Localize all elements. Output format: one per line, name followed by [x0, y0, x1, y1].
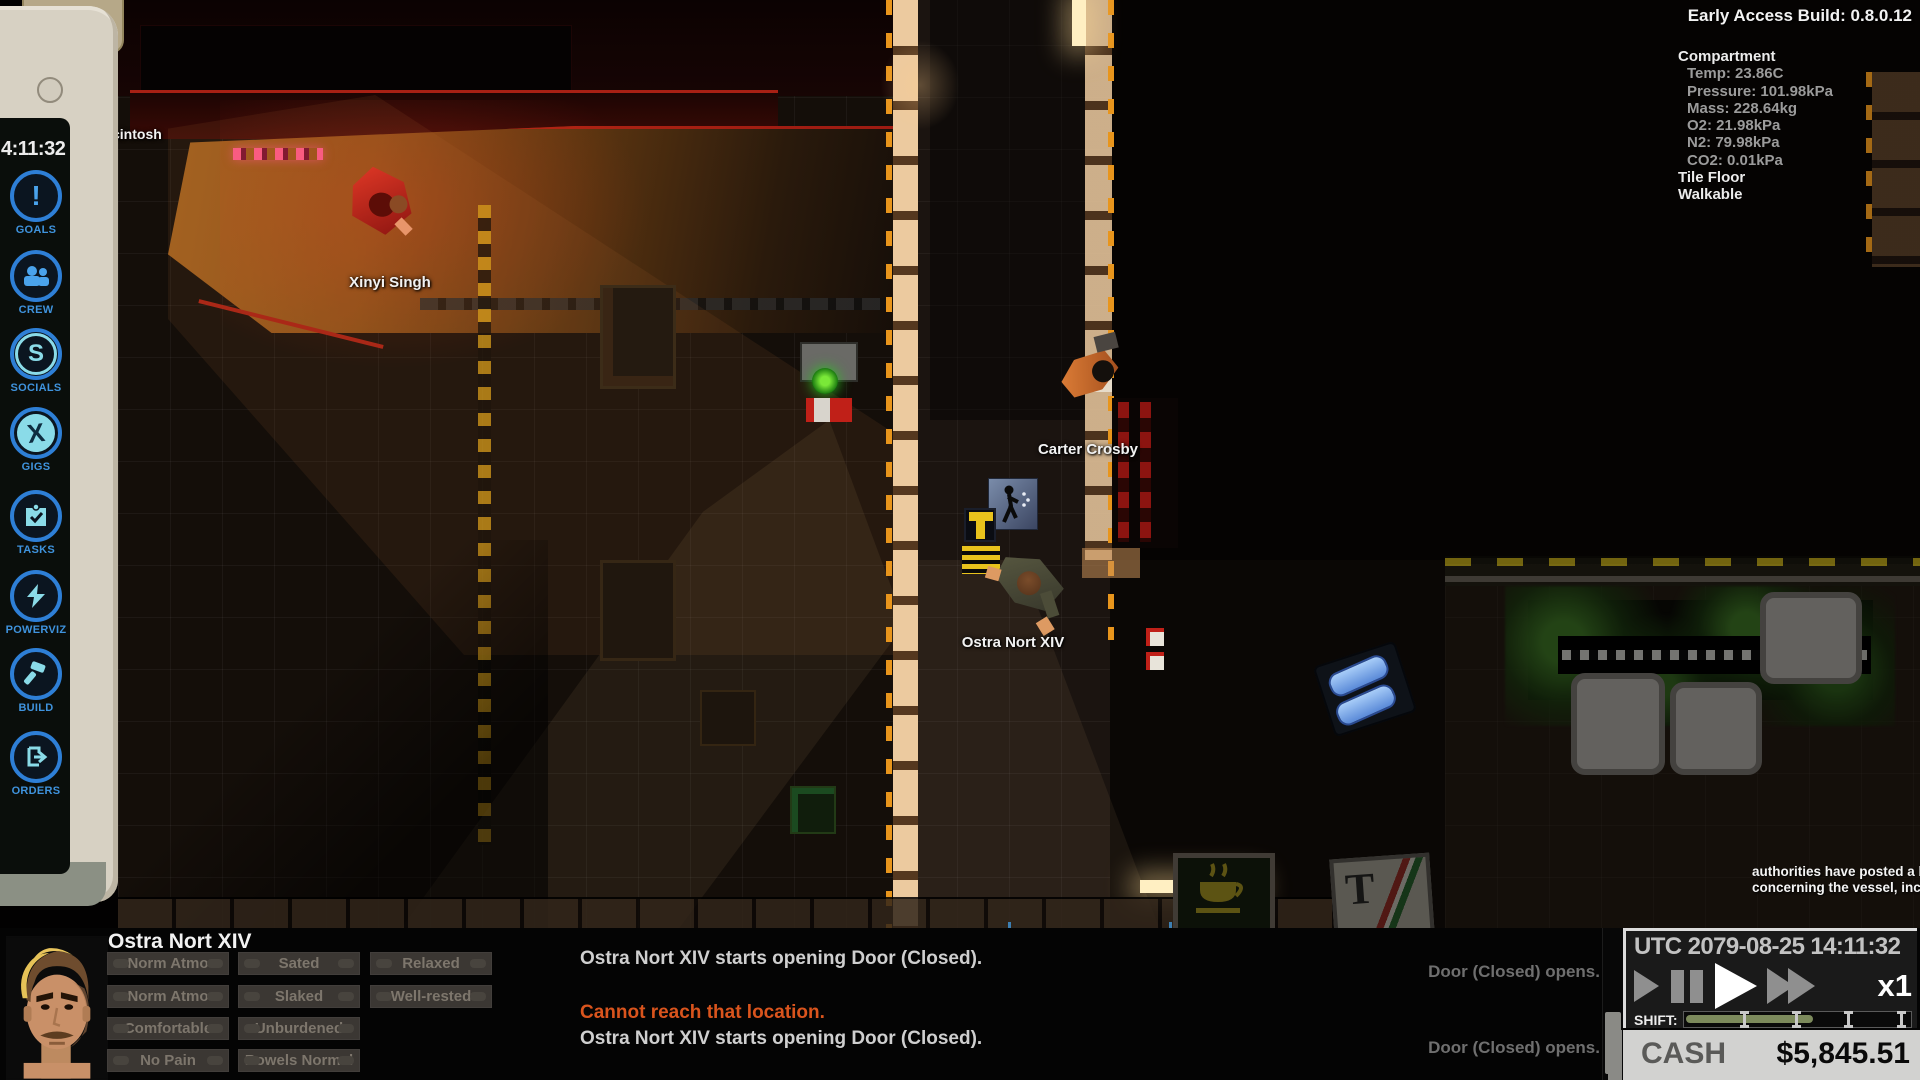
transit-t-sign[interactable]: T	[1329, 853, 1434, 930]
east-door-glow	[1082, 548, 1140, 578]
stat-n2: N2: 79.98kPa	[1678, 134, 1833, 151]
log-line-warning: Cannot reach that location.	[580, 1002, 825, 1024]
door-green-light[interactable]	[812, 368, 838, 394]
corridor-wall-west	[893, 0, 918, 930]
cash-bar: CASH $5,845.51	[1623, 1030, 1920, 1080]
fast-forward-icon[interactable]	[1767, 968, 1815, 1004]
datapad-camera-dot	[37, 77, 63, 103]
character-portrait[interactable]	[6, 936, 108, 1080]
far-right-wall	[1872, 72, 1920, 267]
door-indicator-1[interactable]	[1146, 628, 1164, 646]
goals-icon: !	[10, 170, 62, 222]
coffee-sign[interactable]	[1173, 853, 1275, 930]
playback-controls: x1	[1634, 963, 1912, 1009]
xinyi-arm	[394, 217, 412, 235]
door-frame-prop[interactable]	[600, 285, 676, 389]
sidebar-item-gigs[interactable]: X GIGS	[0, 407, 72, 473]
tile-type-label: Tile Floor	[1678, 169, 1833, 186]
lounge-seat-1[interactable]	[1571, 673, 1665, 775]
pink-light-strip	[233, 148, 323, 160]
lounge-seat-3[interactable]	[1760, 592, 1862, 684]
character-label-ostra: Ostra Nort XIV	[962, 634, 1065, 651]
green-panel-prop[interactable]	[790, 786, 836, 834]
hud-character-name: Ostra Nort XIV	[108, 930, 252, 954]
character-label-carter: Carter Crosby	[1038, 441, 1138, 458]
shift-slider[interactable]	[1683, 1011, 1912, 1028]
red-glow	[220, 100, 650, 370]
shadow-bottom-left	[118, 540, 548, 930]
notification-line-1: authorities have posted a bo	[1752, 864, 1920, 880]
cash-label: CASH	[1641, 1037, 1726, 1071]
coffee-cup-icon	[1178, 858, 1260, 925]
bottom-hud: Ostra Nort XIV Norm Atmo Sated Relaxed N…	[0, 928, 1920, 1080]
status-chip[interactable]: Slaked	[238, 985, 360, 1008]
shift-tick	[1795, 1012, 1798, 1027]
shift-label: SHIFT:	[1634, 1012, 1678, 1028]
cash-bar-tab	[1608, 1030, 1622, 1080]
t-marker-glyph-v	[976, 521, 985, 539]
sidebar-item-tasks[interactable]: TASKS	[0, 490, 72, 556]
log-line-1: Ostra Nort XIV starts opening Door (Clos…	[580, 948, 982, 970]
lounge-top-wall	[1445, 556, 1920, 586]
right-log-line-1: Door (Closed) opens.	[1412, 962, 1600, 982]
stat-mass: Mass: 228.64kg	[1678, 100, 1833, 117]
status-chip[interactable]: Unburdened	[238, 1017, 360, 1040]
carter-pack	[1094, 332, 1119, 353]
play-icon[interactable]	[1715, 963, 1757, 1009]
game-world[interactable]: T Xinyi	[0, 0, 1920, 930]
door-panel-red-white	[806, 398, 852, 422]
t-sign-stripes	[1334, 857, 1431, 930]
tile-walkable-label: Walkable	[1678, 186, 1833, 203]
stat-temp: Temp: 23.86C	[1678, 65, 1833, 82]
status-chip[interactable]: Sated	[238, 952, 360, 975]
crate-prop[interactable]	[700, 690, 756, 746]
crew-icon	[10, 250, 62, 302]
tasks-icon	[10, 490, 62, 542]
time-control-panel: UTC 2079-08-25 14:11:32 x1 SHIFT:	[1623, 928, 1917, 1028]
status-chip[interactable]: Norm Atmo	[107, 985, 229, 1008]
light-bar-top	[1072, 0, 1086, 46]
stat-pressure: Pressure: 101.98kPa	[1678, 83, 1833, 100]
lounge-seat-2[interactable]	[1670, 682, 1762, 775]
right-log-line-2: Door (Closed) opens.	[1412, 1038, 1600, 1058]
sidebar-item-goals[interactable]: ! GOALS	[0, 170, 72, 236]
datapad-sidebar: 4:11:32 ! GOALS CREW S	[0, 0, 140, 930]
east-column-red-stripe-1	[1118, 402, 1129, 542]
notification-line-2: concerning the vessel, inclu	[1752, 880, 1920, 896]
door-indicator-2[interactable]	[1146, 652, 1164, 670]
build-icon	[10, 648, 62, 700]
east-column-red-stripe-2	[1140, 402, 1151, 542]
compartment-title: Compartment	[1678, 48, 1833, 65]
lounge-pipe	[1445, 576, 1920, 582]
sidebar-item-orders[interactable]: ORDERS	[0, 731, 72, 797]
status-chip[interactable]: Comfortable	[107, 1017, 229, 1040]
stat-co2: CO2: 0.01kPa	[1678, 152, 1833, 169]
shift-tick	[1847, 1012, 1850, 1027]
status-chip[interactable]: Well-rested	[370, 985, 492, 1008]
character-label-xinyi: Xinyi Singh	[349, 274, 431, 291]
sidebar-item-socials[interactable]: S SOCIALS	[0, 328, 72, 394]
status-chip[interactable]: Bowels Normal	[238, 1049, 360, 1072]
notification-toast[interactable]: authorities have posted a bo concerning …	[1752, 864, 1920, 896]
t-marker-glyph-h	[969, 512, 993, 521]
shift-slider-fill	[1686, 1015, 1813, 1023]
shift-tick	[1900, 1012, 1903, 1027]
sidebar-item-crew[interactable]: CREW	[0, 250, 72, 316]
pause-icon[interactable]	[1671, 970, 1703, 1003]
play-slow-icon[interactable]	[1634, 970, 1659, 1002]
game-screen: T Xinyi	[0, 0, 1920, 1080]
build-version-label: Early Access Build: 0.8.0.12	[1688, 6, 1912, 26]
shift-row: SHIFT:	[1634, 1011, 1912, 1028]
orders-icon	[10, 731, 62, 783]
status-chip[interactable]: Norm Atmo	[107, 952, 229, 975]
status-chip[interactable]: No Pain	[107, 1049, 229, 1072]
status-chip[interactable]: Relaxed	[370, 952, 492, 975]
stat-o2: O2: 21.98kPa	[1678, 117, 1833, 134]
datapad-screen: 4:11:32 ! GOALS CREW S	[0, 118, 70, 874]
corridor-top-glow	[880, 40, 960, 130]
upper-wall-black-panel	[140, 25, 572, 93]
sidebar-clock: 4:11:32	[1, 138, 71, 161]
shift-tick	[1743, 1012, 1746, 1027]
utc-clock: UTC 2079-08-25 14:11:32	[1634, 933, 1917, 961]
lounge-hazard-dashes	[1445, 558, 1920, 566]
speed-multiplier: x1	[1878, 968, 1912, 1004]
door-frame-prop-2[interactable]	[600, 560, 676, 661]
gigs-icon: X	[10, 407, 62, 459]
socials-icon: S	[10, 328, 62, 380]
far-right-dashes	[1866, 72, 1872, 267]
sidebar-item-powerviz[interactable]: POWERVIZ	[0, 570, 72, 636]
cash-amount: $5,845.51	[1777, 1037, 1910, 1071]
corridor-dashes-west	[886, 0, 892, 930]
powerviz-icon	[10, 570, 62, 622]
log-line-2: Ostra Nort XIV starts opening Door (Clos…	[580, 1028, 982, 1050]
sidebar-item-build[interactable]: BUILD	[0, 648, 72, 714]
